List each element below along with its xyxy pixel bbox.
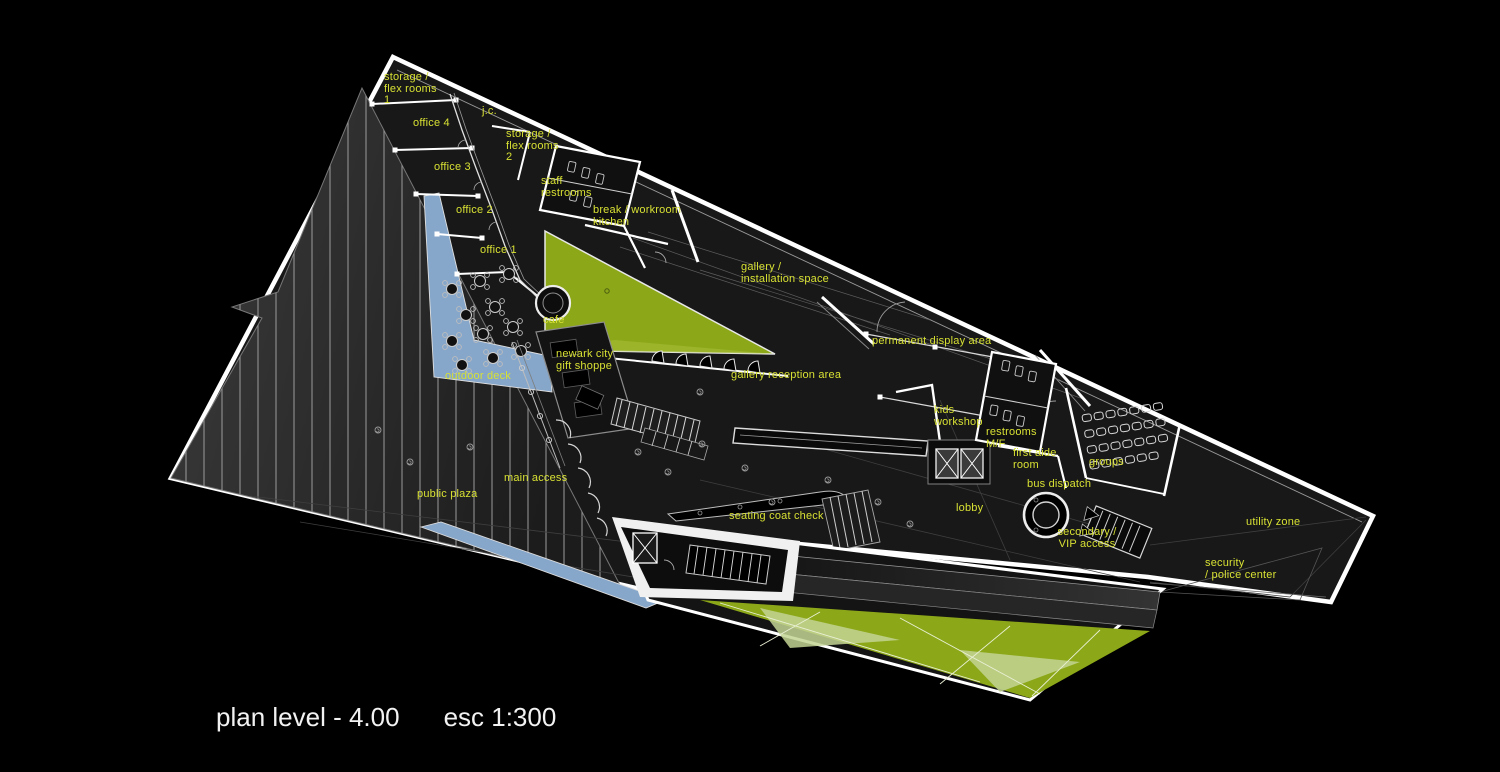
- label-jc: j.c.: [482, 106, 497, 118]
- plan-scale-text: esc 1:300: [444, 702, 557, 732]
- label-secondary-vip: secondary / VIP access: [1032, 527, 1142, 550]
- label-seating-coat-check: seating coat check: [729, 511, 824, 523]
- label-storage-flex-1: storage / flex rooms 1: [384, 72, 437, 107]
- label-storage-flex-2: storage / flex rooms 2: [506, 129, 559, 164]
- label-bus-dispatch: bus dispatch: [1027, 479, 1091, 491]
- label-first-aide: first aide room: [1013, 448, 1057, 471]
- label-groups: groups: [1089, 457, 1124, 469]
- label-permanent-display: permanent display area: [872, 336, 991, 348]
- label-break-workroom: break / workroom kitchen: [593, 205, 681, 228]
- label-kids-workshop: kids workshop: [934, 405, 983, 428]
- label-security-police: security / police center: [1205, 558, 1276, 581]
- label-public-plaza: public plaza: [417, 489, 478, 501]
- plan-level-text: plan level - 4.00: [216, 702, 400, 732]
- floor-plan-page: storage / flex rooms 1 j.c. office 4 sto…: [0, 0, 1500, 772]
- label-staff-restrooms: staff restrooms: [541, 176, 592, 199]
- floor-plan-drawing: [0, 0, 1500, 772]
- label-office-2: office 2: [456, 205, 493, 217]
- label-cafe: cafe: [543, 315, 565, 327]
- label-newark-gift: newark city gift shoppe: [556, 349, 613, 372]
- label-office-4: office 4: [413, 118, 450, 130]
- label-office-1: office 1: [480, 245, 517, 257]
- label-gallery-reception: gallery reception area: [731, 370, 841, 382]
- label-outdoor-deck: outdoor deck: [445, 371, 511, 383]
- label-lobby: lobby: [956, 503, 983, 515]
- label-office-3: office 3: [434, 162, 471, 174]
- plan-caption: plan level - 4.00esc 1:300: [216, 702, 556, 733]
- label-utility-zone: utility zone: [1246, 517, 1300, 529]
- label-main-access: main access: [504, 473, 567, 485]
- label-gallery-installation: gallery / installation space: [741, 262, 829, 285]
